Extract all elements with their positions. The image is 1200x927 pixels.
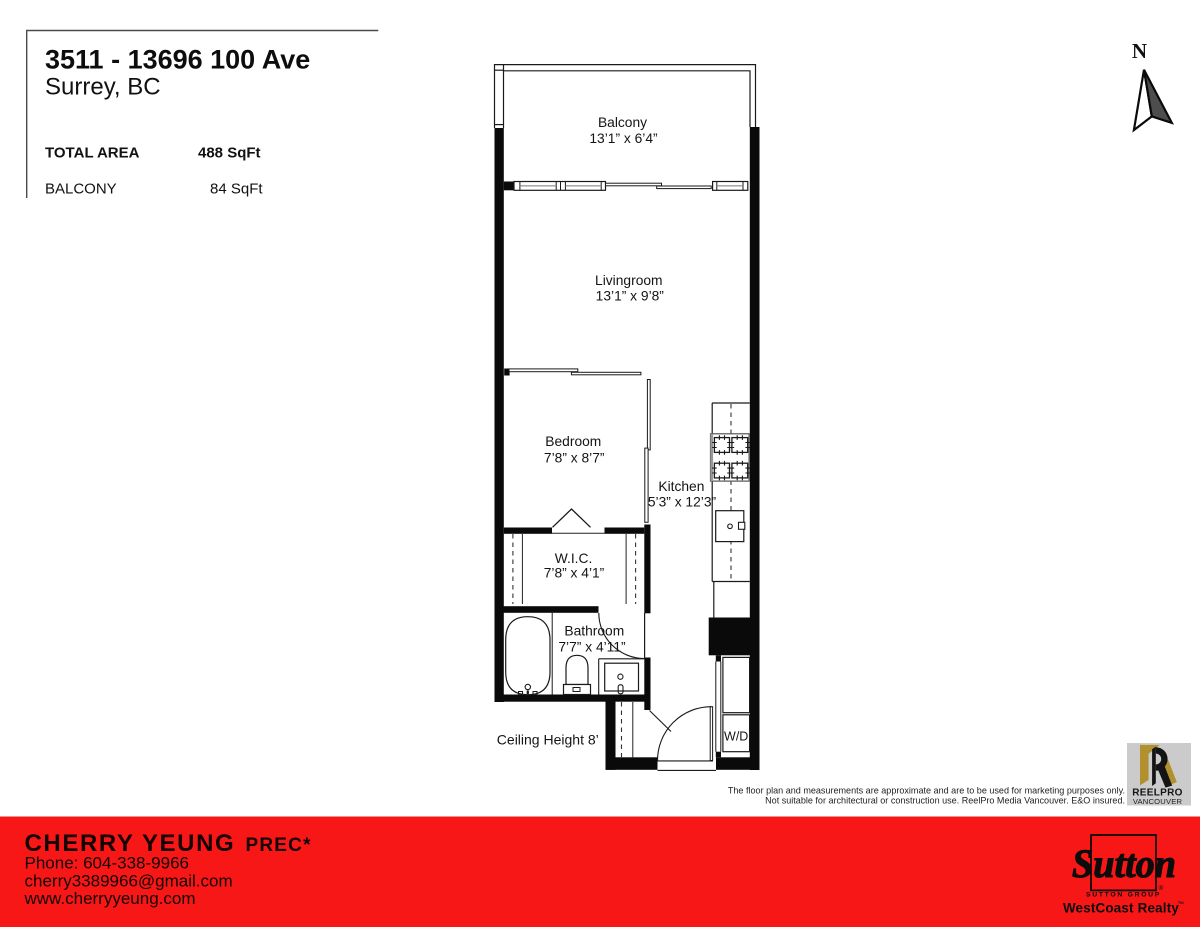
svg-text:7’8” x 4’1”: 7’8” x 4’1” <box>544 566 605 581</box>
svg-text:BALCONY: BALCONY <box>45 180 117 197</box>
svg-text:WestCoast Realty: WestCoast Realty <box>1063 901 1179 916</box>
svg-text:The floor plan and measurement: The floor plan and measurements are appr… <box>728 785 1125 795</box>
svg-text:SUTTON GROUP: SUTTON GROUP <box>1086 892 1161 899</box>
svg-text:Not suitable for architectural: Not suitable for architectural or constr… <box>765 795 1125 805</box>
svg-text:N: N <box>1132 39 1147 63</box>
svg-text:Bathroom: Bathroom <box>564 624 624 639</box>
svg-text:5’3” x 12’3”: 5’3” x 12’3” <box>648 494 717 509</box>
svg-text:www.cherryyeung.com: www.cherryyeung.com <box>24 889 196 908</box>
svg-text:Livingroom: Livingroom <box>595 273 662 288</box>
svg-text:VANCOUVER: VANCOUVER <box>1133 797 1183 806</box>
svg-text:Phone: 604-338-9966: Phone: 604-338-9966 <box>25 854 189 873</box>
svg-text:7’7” x 4’11”: 7’7” x 4’11” <box>558 640 626 655</box>
svg-text:Sutton: Sutton <box>1072 841 1176 886</box>
svg-text:7’8” x 8’7”: 7’8” x 8’7” <box>544 450 605 465</box>
svg-text:W.I.C.: W.I.C. <box>555 551 593 566</box>
svg-text:TOTAL AREA: TOTAL AREA <box>45 145 140 162</box>
svg-text:3511 - 13696 100 Ave: 3511 - 13696 100 Ave <box>45 44 310 74</box>
svg-text:Surrey, BC: Surrey, BC <box>45 74 161 101</box>
svg-text:®: ® <box>1159 884 1164 892</box>
svg-text:Balcony: Balcony <box>598 115 647 130</box>
svg-text:PREC*: PREC* <box>246 835 312 856</box>
svg-text:488 SqFt: 488 SqFt <box>198 145 261 162</box>
svg-text:™: ™ <box>1178 901 1185 908</box>
svg-text:13’1” x 6’4”: 13’1” x 6’4” <box>589 131 658 146</box>
svg-text:cherry3389966@gmail.com: cherry3389966@gmail.com <box>25 872 233 891</box>
svg-text:13’1” x 9’8”: 13’1” x 9’8” <box>596 288 665 303</box>
svg-text:Ceiling Height 8’: Ceiling Height 8’ <box>497 731 599 747</box>
svg-text:84 SqFt: 84 SqFt <box>210 180 263 197</box>
svg-text:Bedroom: Bedroom <box>545 434 601 449</box>
svg-text:Kitchen: Kitchen <box>658 479 704 494</box>
svg-text:W/D: W/D <box>724 729 748 743</box>
